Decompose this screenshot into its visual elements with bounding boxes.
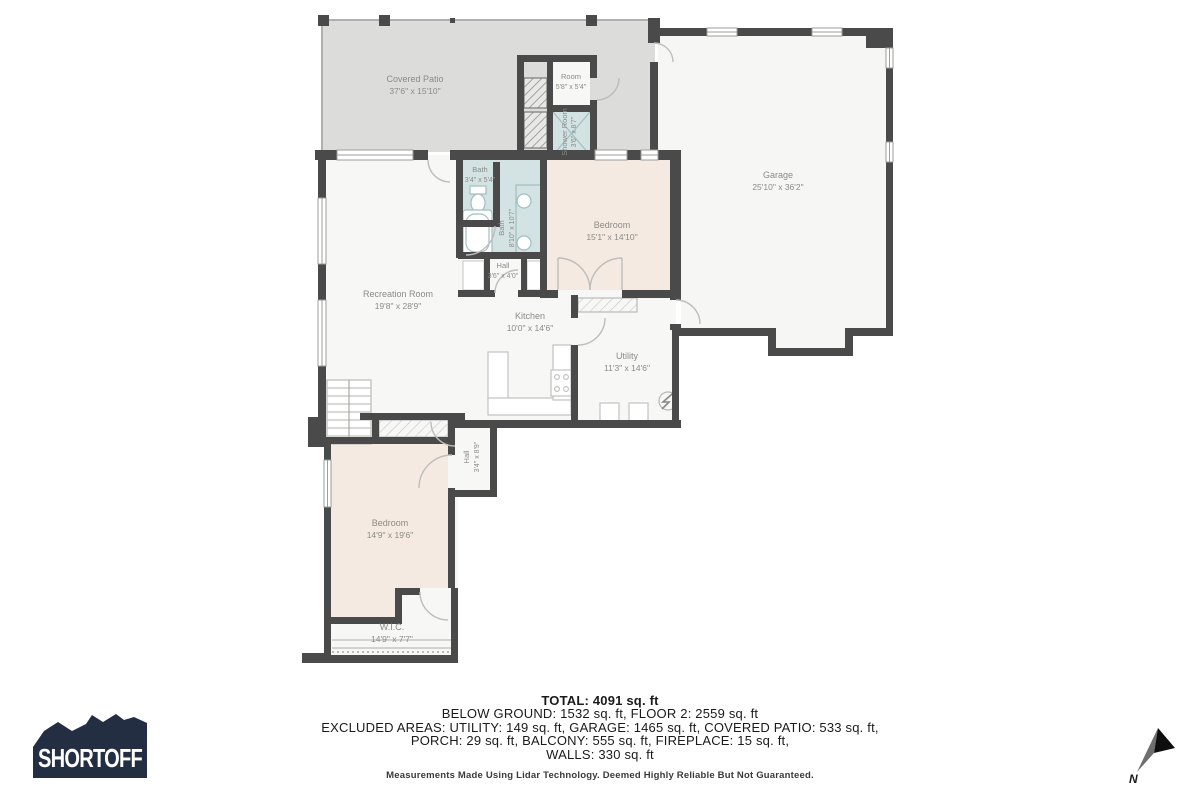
toilet	[470, 186, 486, 212]
summary-total: TOTAL: 4091 sq. ft	[0, 694, 1200, 707]
svg-text:3'4" x 5'4": 3'4" x 5'4"	[465, 177, 496, 184]
svg-text:Bath: Bath	[472, 165, 487, 174]
svg-text:W.I.C.: W.I.C.	[380, 622, 405, 632]
covered-patio-floor	[322, 20, 655, 152]
floor-plan-svg: Covered Patio 37'6" x 15'10" Room 5'8" x…	[0, 0, 1200, 800]
window	[595, 150, 627, 160]
svg-text:37'6" x 15'10": 37'6" x 15'10"	[389, 86, 440, 96]
svg-text:14'9" x 19'6": 14'9" x 19'6"	[367, 530, 414, 540]
bedroom-closet	[578, 298, 637, 312]
svg-text:Hall: Hall	[497, 261, 510, 270]
stove	[551, 370, 571, 396]
window	[318, 300, 326, 366]
svg-text:3'6" x 8'7": 3'6" x 8'7"	[571, 116, 578, 147]
window	[318, 198, 326, 264]
window	[812, 28, 842, 36]
svg-text:Room: Room	[561, 72, 581, 81]
summary-line-walls: WALLS: 330 sq. ft	[0, 748, 1200, 761]
area-summary: TOTAL: 4091 sq. ft BELOW GROUND: 1532 sq…	[0, 694, 1200, 781]
svg-text:Kitchen: Kitchen	[515, 311, 545, 321]
window	[886, 48, 893, 68]
patio-column	[586, 15, 597, 26]
svg-text:Bedroom: Bedroom	[372, 518, 409, 528]
window	[641, 150, 658, 160]
floor-plan-page: Covered Patio 37'6" x 15'10" Room 5'8" x…	[0, 0, 1200, 800]
hall-closet-left	[463, 261, 484, 290]
svg-text:5'8" x 5'4": 5'8" x 5'4"	[556, 84, 587, 91]
fireplace-chimney	[524, 78, 547, 108]
closet-sliding-doors	[379, 420, 448, 437]
svg-text:10'0" x 14'6": 10'0" x 14'6"	[507, 323, 554, 333]
fireplace-chimney	[524, 112, 547, 148]
svg-text:3'6" x 4'0": 3'6" x 4'0"	[488, 273, 519, 280]
svg-text:Bedroom: Bedroom	[594, 220, 631, 230]
svg-text:19'8" x 28'9": 19'8" x 28'9"	[375, 301, 422, 311]
svg-text:14'9" x 7'7": 14'9" x 7'7"	[371, 634, 413, 644]
window	[886, 142, 893, 162]
svg-text:Garage: Garage	[763, 170, 793, 180]
summary-line-floors: BELOW GROUND: 1532 sq. ft, FLOOR 2: 2559…	[0, 707, 1200, 720]
summary-disclaimer: Measurements Made Using Lidar Technology…	[0, 770, 1200, 781]
svg-text:3'4" x 8'9": 3'4" x 8'9"	[474, 441, 481, 472]
garage-floor	[658, 36, 886, 348]
svg-text:Hall: Hall	[462, 450, 471, 463]
svg-text:Covered Patio: Covered Patio	[386, 74, 443, 84]
svg-text:15'1" x 14'10": 15'1" x 14'10"	[586, 232, 637, 242]
svg-text:25'10" x 36'2": 25'10" x 36'2"	[752, 182, 803, 192]
svg-text:Recreation Room: Recreation Room	[363, 289, 433, 299]
svg-text:11'3" x 14'6": 11'3" x 14'6"	[604, 363, 650, 373]
svg-text:Shower Room: Shower Room	[560, 108, 569, 156]
patio-column	[379, 15, 390, 26]
svg-text:Utility: Utility	[616, 351, 638, 361]
floor-fills	[322, 20, 886, 663]
summary-line-excluded: EXCLUDED AREAS: UTILITY: 149 sq. ft, GAR…	[0, 721, 1200, 734]
svg-text:8'10" x 10'7": 8'10" x 10'7"	[509, 208, 516, 247]
patio-column	[450, 18, 455, 23]
svg-text:Bath: Bath	[497, 220, 506, 235]
window	[707, 28, 737, 36]
window	[324, 460, 331, 507]
window	[337, 150, 413, 160]
bathtub	[463, 210, 492, 255]
patio-column	[318, 15, 329, 26]
summary-line-excluded2: PORCH: 29 sq. ft, BALCONY: 555 sq. ft, F…	[0, 734, 1200, 747]
staircase	[327, 380, 371, 444]
